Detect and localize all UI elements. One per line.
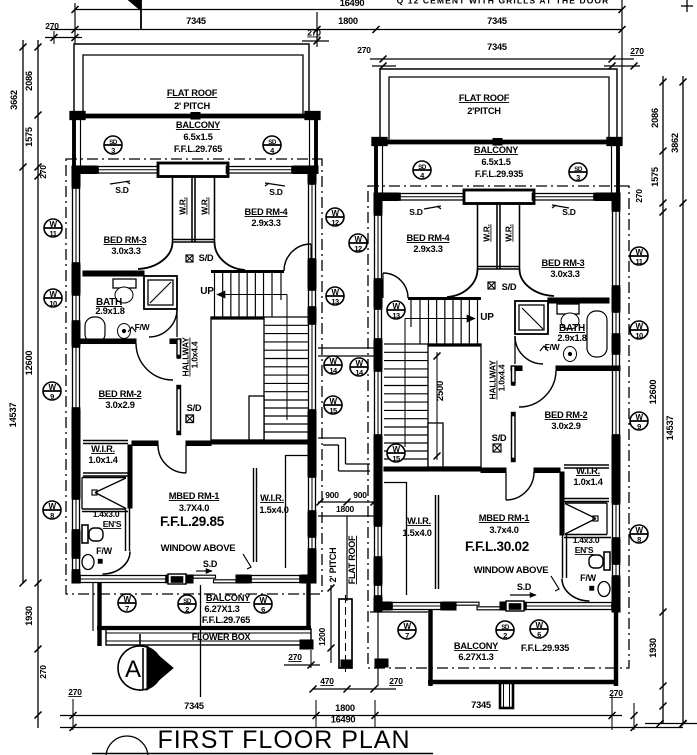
svg-text:1800: 1800 [335, 703, 355, 713]
svg-text:W: W [403, 622, 411, 631]
svg-text:270: 270 [634, 189, 644, 203]
svg-text:12: 12 [331, 218, 339, 227]
svg-text:W.R.: W.R. [200, 197, 210, 214]
svg-text:7345: 7345 [186, 16, 206, 26]
svg-text:BALCONY: BALCONY [206, 593, 251, 603]
svg-text:1.0x4.4: 1.0x4.4 [190, 341, 200, 368]
svg-text:2.9x1.8: 2.9x1.8 [95, 306, 124, 316]
svg-text:S.D: S.D [269, 187, 283, 197]
svg-text:2086: 2086 [650, 108, 660, 128]
svg-text:BED RM-2: BED RM-2 [545, 410, 588, 420]
svg-text:6.27X1.3: 6.27X1.3 [204, 604, 239, 614]
svg-text:6: 6 [537, 630, 541, 639]
svg-text:FLAT ROOF: FLAT ROOF [347, 535, 357, 584]
svg-text:SD: SD [501, 624, 510, 631]
svg-text:1800: 1800 [336, 504, 354, 514]
svg-text:S.D: S.D [409, 207, 423, 217]
svg-text:13: 13 [392, 311, 400, 320]
svg-text:15: 15 [329, 406, 337, 415]
svg-text:W: W [635, 413, 643, 422]
svg-text:BED RM-3: BED RM-3 [542, 258, 585, 268]
svg-text:MBED RM-1: MBED RM-1 [169, 491, 220, 501]
svg-text:12: 12 [354, 244, 362, 253]
svg-text:7345: 7345 [184, 701, 204, 711]
svg-text:10: 10 [49, 299, 57, 308]
svg-text:W: W [49, 290, 57, 299]
svg-text:W: W [392, 445, 400, 454]
svg-text:8: 8 [637, 535, 641, 544]
svg-text:9: 9 [50, 392, 54, 401]
svg-text:3.7X4.0: 3.7X4.0 [179, 503, 209, 513]
svg-text:W: W [123, 595, 131, 604]
svg-text:11: 11 [636, 257, 643, 266]
svg-text:14537: 14537 [8, 403, 18, 428]
svg-text:270: 270 [357, 45, 371, 55]
svg-text:6: 6 [261, 605, 265, 614]
svg-text:15: 15 [392, 454, 400, 463]
svg-text:1.5x4.0: 1.5x4.0 [402, 528, 431, 538]
svg-text:14537: 14537 [665, 416, 675, 441]
svg-text:3.0x2.9: 3.0x2.9 [551, 421, 580, 431]
svg-text:7: 7 [405, 631, 409, 640]
svg-text:W.I.R.: W.I.R. [407, 516, 431, 526]
svg-text:W.I.R.: W.I.R. [91, 444, 115, 454]
svg-text:1.4x3.0: 1.4x3.0 [573, 535, 600, 545]
svg-text:3.0x3.3: 3.0x3.3 [550, 269, 579, 279]
svg-text:BED RM-4: BED RM-4 [245, 207, 289, 217]
svg-text:F.F.L.29.935: F.F.L.29.935 [475, 169, 523, 179]
svg-text:BED RM-3: BED RM-3 [104, 235, 147, 245]
svg-text:MBED RM-1: MBED RM-1 [479, 513, 530, 523]
svg-text:2.9x1.8: 2.9x1.8 [557, 333, 586, 343]
svg-text:BED RM-4: BED RM-4 [407, 233, 451, 243]
svg-text:2.9x3.3: 2.9x3.3 [413, 244, 442, 254]
svg-text:S/D: S/D [502, 282, 517, 292]
svg-text:900: 900 [325, 490, 339, 500]
svg-text:3: 3 [111, 146, 115, 155]
svg-text:7345: 7345 [487, 16, 507, 26]
svg-text:W.I.R.: W.I.R. [260, 493, 284, 503]
svg-text:SD: SD [574, 166, 583, 173]
svg-text:2086: 2086 [24, 71, 34, 91]
svg-text:13: 13 [331, 297, 339, 306]
svg-text:F.F.L.30.02: F.F.L.30.02 [465, 539, 529, 554]
svg-text:BED RM-2: BED RM-2 [99, 389, 142, 399]
svg-text:6.27X1.3: 6.27X1.3 [458, 652, 493, 662]
svg-text:S.D: S.D [517, 582, 532, 592]
svg-text:270: 270 [630, 46, 644, 56]
svg-text:F/W: F/W [580, 573, 596, 583]
svg-text:3862: 3862 [670, 133, 680, 153]
svg-text:Q 12 CEMENT WITH GRILLS AT THE: Q 12 CEMENT WITH GRILLS AT THE DOOR [397, 0, 610, 6]
svg-text:S/D: S/D [492, 433, 507, 443]
svg-text:8: 8 [50, 511, 54, 520]
svg-text:W: W [48, 383, 56, 392]
svg-text:W: W [635, 322, 643, 331]
svg-text:SD: SD [418, 164, 427, 171]
svg-text:3.0x2.9: 3.0x2.9 [105, 400, 134, 410]
svg-text:1.0x1.4: 1.0x1.4 [88, 455, 118, 465]
svg-text:1930: 1930 [24, 606, 34, 626]
svg-text:W: W [635, 248, 643, 257]
svg-text:10: 10 [635, 331, 643, 340]
svg-text:2: 2 [185, 605, 189, 614]
svg-text:W: W [331, 209, 339, 218]
svg-text:1200: 1200 [317, 628, 327, 646]
svg-text:1800: 1800 [338, 16, 358, 26]
svg-text:7: 7 [125, 604, 129, 613]
svg-text:SD: SD [109, 139, 118, 146]
svg-text:1.5x4.0: 1.5x4.0 [259, 505, 288, 515]
svg-text:BALCONY: BALCONY [176, 120, 221, 130]
svg-text:12600: 12600 [24, 351, 34, 376]
svg-text:UP: UP [200, 286, 214, 297]
svg-text:270: 270 [307, 28, 321, 38]
svg-text:UP: UP [480, 312, 494, 323]
svg-text:SD: SD [268, 139, 277, 146]
svg-text:1.4x3.0: 1.4x3.0 [93, 509, 120, 519]
svg-text:2500: 2500 [435, 381, 446, 401]
svg-text:W: W [354, 235, 362, 244]
svg-text:W: W [329, 357, 337, 366]
svg-text:W: W [49, 220, 57, 229]
svg-text:3.0x3.3: 3.0x3.3 [111, 246, 140, 256]
svg-text:270: 270 [609, 688, 623, 698]
svg-text:F.F.L.29.935: F.F.L.29.935 [521, 643, 569, 653]
svg-text:1575: 1575 [24, 127, 34, 147]
svg-text:16490: 16490 [331, 715, 356, 725]
svg-text:S/D: S/D [199, 253, 214, 263]
svg-text:270: 270 [288, 652, 302, 662]
svg-text:1.0x1.4: 1.0x1.4 [573, 477, 603, 487]
svg-text:3662: 3662 [9, 90, 19, 110]
svg-text:7345: 7345 [471, 700, 491, 710]
svg-text:S.D: S.D [203, 559, 218, 569]
svg-text:W: W [329, 397, 337, 406]
svg-text:6.5x1.5: 6.5x1.5 [183, 132, 212, 142]
svg-text:2' PITCH: 2' PITCH [174, 101, 210, 111]
svg-text:3.7x4.0: 3.7x4.0 [489, 525, 518, 535]
svg-text:W.R.: W.R. [178, 197, 188, 214]
svg-text:F.F.L.29.765: F.F.L.29.765 [202, 615, 250, 625]
svg-text:F/W: F/W [96, 546, 112, 556]
svg-text:W.R.: W.R. [482, 224, 492, 241]
svg-text:W: W [259, 596, 267, 605]
svg-text:1575: 1575 [650, 167, 660, 187]
svg-text:FLAT ROOF: FLAT ROOF [167, 88, 218, 98]
svg-text:F.F.L.29.85: F.F.L.29.85 [160, 514, 225, 529]
svg-text:BALCONY: BALCONY [454, 641, 499, 651]
svg-text:1930: 1930 [648, 638, 658, 658]
svg-text:SD: SD [183, 598, 192, 605]
svg-text:W.I.R.: W.I.R. [576, 466, 600, 476]
svg-text:BALCONY: BALCONY [474, 145, 519, 155]
svg-text:W: W [48, 502, 56, 511]
svg-text:6.5x1.5: 6.5x1.5 [481, 157, 510, 167]
svg-text:W: W [355, 359, 363, 368]
svg-text:12600: 12600 [648, 380, 658, 405]
svg-text:2.9x3.3: 2.9x3.3 [251, 218, 280, 228]
svg-text:9: 9 [637, 422, 641, 431]
svg-text:WINDOW ABOVE: WINDOW ABOVE [474, 565, 549, 576]
svg-text:F.F.L.29.765: F.F.L.29.765 [174, 144, 222, 154]
svg-text:3: 3 [576, 173, 580, 182]
svg-text:16490: 16490 [340, 0, 365, 8]
svg-text:270: 270 [68, 687, 82, 697]
svg-text:900: 900 [353, 490, 367, 500]
svg-text:2'PITCH: 2'PITCH [467, 106, 501, 116]
svg-text:EN'S: EN'S [575, 545, 594, 555]
svg-text:W.R.: W.R. [504, 224, 514, 241]
svg-text:WINDOW ABOVE: WINDOW ABOVE [161, 543, 236, 554]
svg-text:S.D: S.D [562, 207, 576, 217]
svg-text:2: 2 [503, 631, 507, 640]
svg-text:7345: 7345 [487, 42, 507, 52]
svg-text:W: W [635, 526, 643, 535]
svg-text:270: 270 [38, 665, 48, 679]
svg-text:F/W: F/W [135, 322, 151, 332]
svg-text:EN'S: EN'S [103, 519, 122, 529]
svg-text:1.0x4.4: 1.0x4.4 [497, 364, 507, 391]
svg-text:W: W [392, 302, 400, 311]
svg-text:270: 270 [45, 21, 59, 31]
svg-text:2' PITCH: 2' PITCH [328, 548, 338, 583]
svg-text:A: A [125, 656, 141, 683]
svg-text:W: W [331, 288, 339, 297]
svg-text:S.D: S.D [115, 185, 129, 195]
svg-text:270: 270 [389, 676, 403, 686]
svg-text:W: W [535, 621, 543, 630]
svg-text:FLAT ROOF: FLAT ROOF [459, 93, 510, 103]
svg-text:S/D: S/D [187, 403, 202, 413]
svg-text:11: 11 [50, 229, 57, 238]
svg-text:470: 470 [320, 676, 334, 686]
svg-text:FIRST FLOOR PLAN: FIRST FLOOR PLAN [157, 726, 410, 754]
svg-text:270: 270 [38, 165, 48, 179]
